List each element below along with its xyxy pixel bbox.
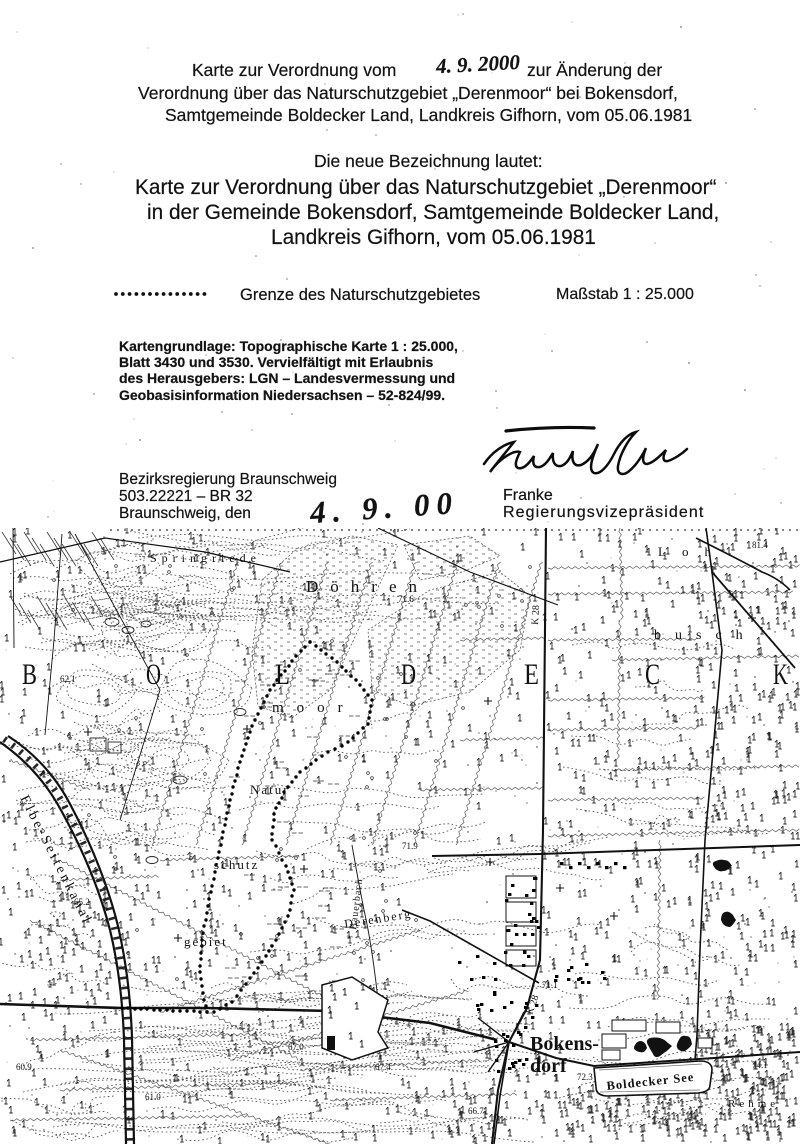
svg-text:moor: moor <box>272 700 356 716</box>
svg-text:71.6: 71.6 <box>398 594 414 604</box>
svg-text:Bokens-: Bokens- <box>530 1033 599 1055</box>
svg-text:67.4: 67.4 <box>375 1062 391 1072</box>
svg-text:O: O <box>146 658 161 691</box>
svg-text:Natur: Natur <box>250 782 290 797</box>
svg-text:Springriede: Springriede <box>150 551 261 565</box>
svg-text:71.9: 71.9 <box>402 841 418 851</box>
svg-text:67.0: 67.0 <box>288 1042 304 1052</box>
svg-text:schutz: schutz <box>214 857 259 872</box>
svg-text:D: D <box>401 658 416 691</box>
svg-text:E: E <box>524 658 539 691</box>
svg-text:72.3: 72.3 <box>577 1072 593 1082</box>
svg-text:66.7: 66.7 <box>468 1106 484 1116</box>
svg-text:71.1: 71.1 <box>542 980 558 990</box>
svg-text:Loh: Loh <box>658 544 727 559</box>
svg-text:62.1: 62.1 <box>60 674 76 684</box>
svg-text:C: C <box>645 658 660 691</box>
svg-text:B: B <box>22 658 37 691</box>
svg-text:60.9: 60.9 <box>16 1062 32 1072</box>
svg-text:busch: busch <box>654 628 757 643</box>
svg-text:65.2: 65.2 <box>74 897 90 907</box>
svg-text:Rehme: Rehme <box>728 1098 779 1110</box>
svg-text:61.0: 61.0 <box>145 1092 161 1102</box>
svg-text:K: K <box>773 658 788 691</box>
svg-text:81.4: 81.4 <box>752 540 768 550</box>
svg-text:gebiet: gebiet <box>184 934 228 949</box>
svg-text:L: L <box>275 658 290 691</box>
svg-text:dorf: dorf <box>530 1055 567 1077</box>
svg-text:K 28: K 28 <box>530 605 542 625</box>
svg-text:74.1: 74.1 <box>752 1060 768 1070</box>
